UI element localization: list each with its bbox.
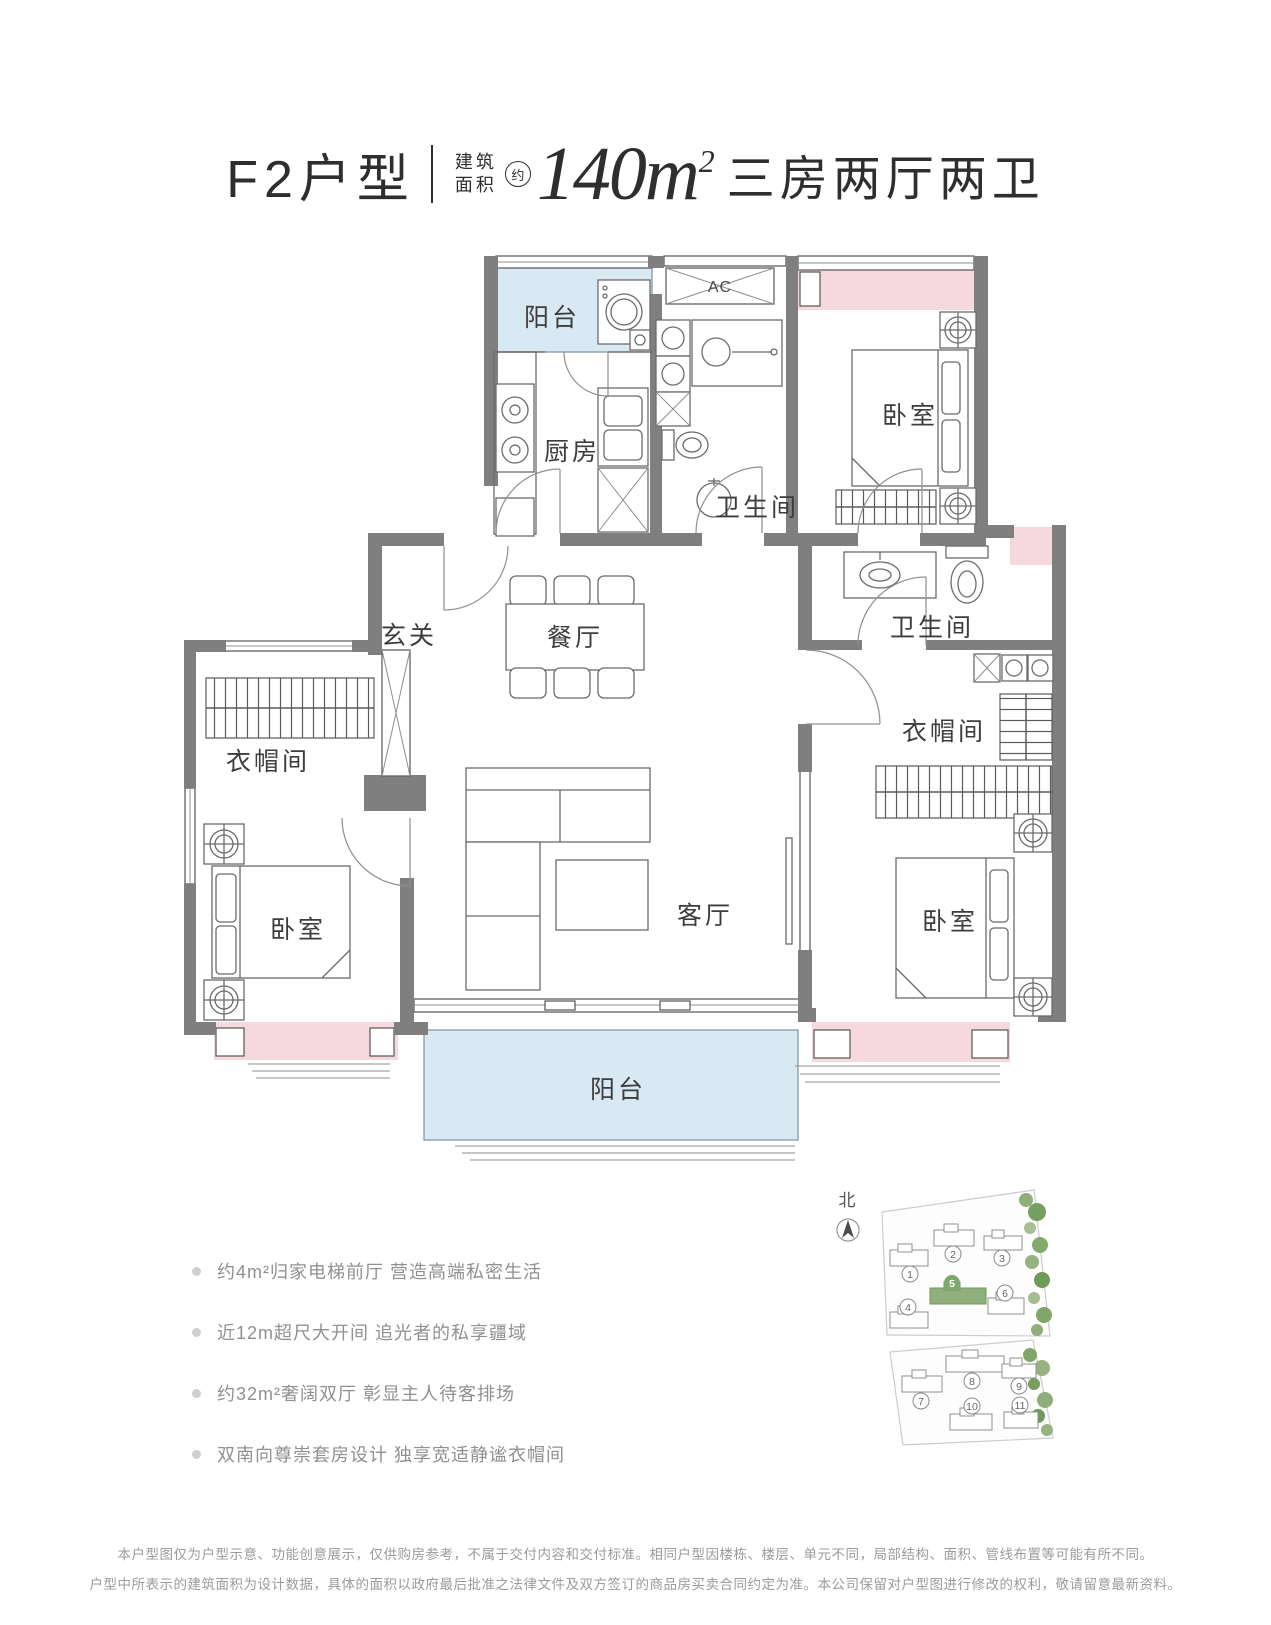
room-label-balcony-bottom: 阳台 bbox=[590, 1076, 646, 1104]
feature-text: 约4m²归家电梯前厅 营造高端私密生活 bbox=[217, 1258, 542, 1284]
disclaimer: 本户型图仅为户型示意、功能创意展示，仅供购房参考，不属于交付内容和交付标准。相同… bbox=[0, 1540, 1271, 1600]
svg-text:1: 1 bbox=[907, 1269, 913, 1281]
svg-text:5: 5 bbox=[949, 1278, 955, 1290]
svg-text:8: 8 bbox=[969, 1376, 975, 1388]
cloakroom-right-wardrobe bbox=[876, 694, 1052, 818]
room-label-bedroom-left: 卧室 bbox=[270, 916, 326, 944]
tv-wall bbox=[786, 772, 810, 950]
disclaimer-line1: 本户型图仅为户型示意、功能创意展示，仅供购房参考，不属于交付内容和交付标准。相同… bbox=[0, 1540, 1271, 1570]
bullet-dot-icon bbox=[192, 1328, 201, 1337]
svg-text:11: 11 bbox=[1015, 1400, 1026, 1412]
bullet-dot-icon bbox=[192, 1267, 201, 1276]
svg-text:6: 6 bbox=[1002, 1288, 1008, 1300]
cloakroom-left-wardrobe bbox=[206, 678, 374, 738]
living-furniture bbox=[466, 768, 650, 990]
svg-text:10: 10 bbox=[966, 1401, 978, 1413]
ac-label: AC bbox=[708, 279, 732, 296]
balcony-steps bbox=[455, 1146, 795, 1160]
room-label-balcony-top: 阳台 bbox=[524, 304, 580, 332]
bay-window-bottom-right bbox=[795, 1022, 1010, 1082]
room-label-dining: 餐厅 bbox=[547, 624, 603, 652]
bullet-dot-icon bbox=[192, 1450, 201, 1459]
feature-text: 约32m²奢阔双厅 彰显主人待客排场 bbox=[217, 1380, 515, 1406]
room-label-cloakroom-right: 衣帽间 bbox=[902, 718, 986, 746]
entry-door bbox=[444, 546, 508, 610]
feature-item: 约4m²归家电梯前厅 营造高端私密生活 bbox=[192, 1258, 565, 1284]
bullet-dot-icon bbox=[192, 1389, 201, 1398]
room-label-bedroom-right: 卧室 bbox=[922, 908, 978, 936]
suite-entry-door bbox=[806, 650, 880, 724]
room-label-bath-top: 卫生间 bbox=[715, 494, 799, 522]
floorplan-svg: AC bbox=[0, 0, 1271, 1625]
svg-text:3: 3 bbox=[999, 1253, 1005, 1265]
room-label-foyer: 玄关 bbox=[381, 622, 437, 650]
north-label: 北 bbox=[839, 1191, 856, 1210]
room-label-bedroom-top: 卧室 bbox=[882, 402, 938, 430]
room-label-cloakroom-left: 衣帽间 bbox=[226, 748, 310, 776]
ac-unit: AC bbox=[666, 268, 774, 304]
bay-window-bedroom-top bbox=[798, 270, 974, 310]
feature-text: 近12m超尺大开间 追光者的私享疆域 bbox=[217, 1319, 527, 1345]
room-label-kitchen: 厨房 bbox=[544, 438, 600, 466]
elevator-shaft bbox=[382, 650, 410, 776]
feature-list: 约4m²归家电梯前厅 营造高端私密生活 近12m超尺大开间 追光者的私享疆域 约… bbox=[192, 1258, 565, 1467]
feature-item: 近12m超尺大开间 追光者的私享疆域 bbox=[192, 1319, 565, 1345]
site-map: 北 bbox=[837, 1190, 1053, 1445]
feature-item: 双南向尊崇套房设计 独享宽适静谧衣帽间 bbox=[192, 1441, 565, 1467]
svg-text:2: 2 bbox=[950, 1249, 956, 1261]
room-label-bath-right: 卫生间 bbox=[890, 614, 974, 642]
bay-window-bottom-left bbox=[214, 1022, 398, 1078]
svg-text:7: 7 bbox=[918, 1396, 924, 1408]
svg-text:4: 4 bbox=[905, 1302, 911, 1314]
room-label-living: 客厅 bbox=[677, 902, 733, 930]
feature-item: 约32m²奢阔双厅 彰显主人待客排场 bbox=[192, 1380, 565, 1406]
bay-window-right bbox=[1010, 527, 1054, 565]
compass-icon bbox=[837, 1219, 859, 1241]
washing-machine bbox=[598, 280, 650, 350]
feature-text: 双南向尊崇套房设计 独享宽适静谧衣帽间 bbox=[217, 1441, 565, 1467]
svg-text:9: 9 bbox=[1016, 1381, 1022, 1393]
disclaimer-line2: 户型中所表示的建筑面积为设计数据，具体的面积以政府最后批准之法律文件及双方签订的… bbox=[0, 1570, 1271, 1600]
